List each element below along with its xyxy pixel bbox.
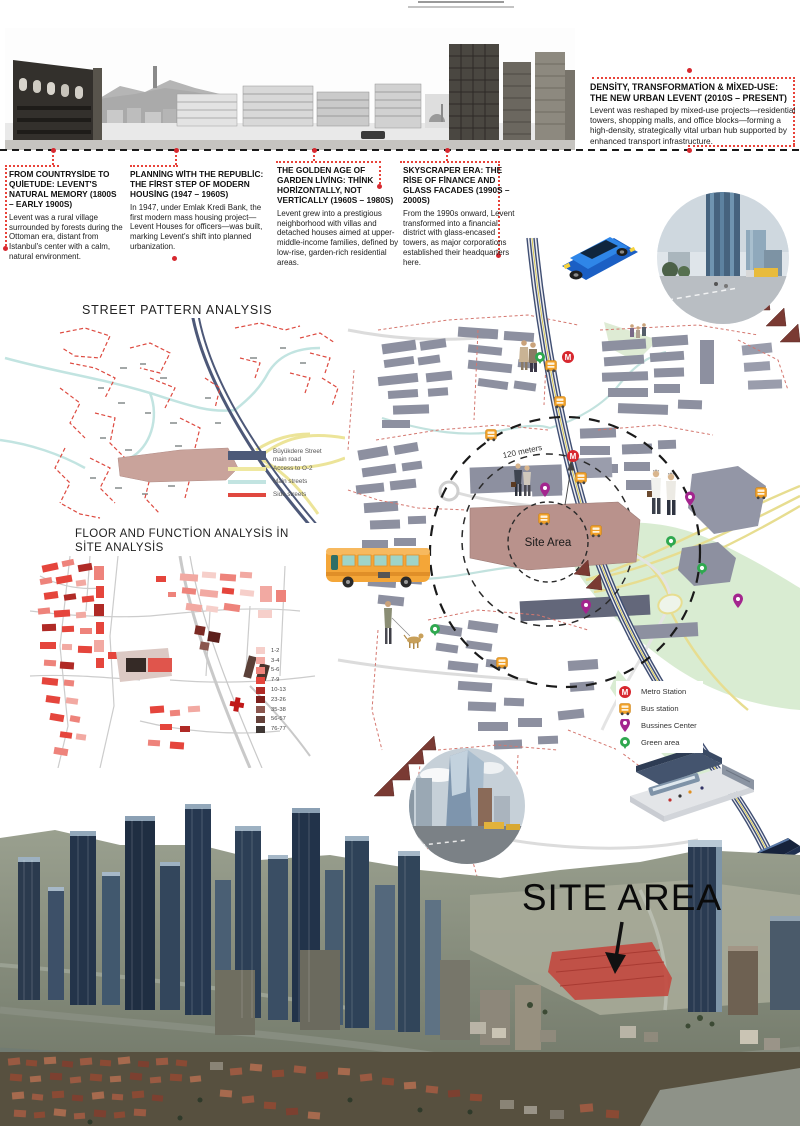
legend-swatch <box>228 451 266 460</box>
legend-label: Bussines Center <box>641 721 697 730</box>
legend-label: 3-4 <box>271 658 279 664</box>
bus-illustration <box>326 548 430 588</box>
era1-dot <box>3 246 8 251</box>
legend-row: 1-2 <box>256 646 286 656</box>
legend-label: 76-77 <box>271 726 286 732</box>
floor-function-legend: 1-2 3-4 5-6 7-9 10-13 23-26 35-38 56-57 … <box>256 646 286 734</box>
site-analysis-map: M <box>318 190 800 880</box>
timeline-axis <box>0 149 800 151</box>
timeline-dot <box>445 148 450 153</box>
legend-row: Green area <box>618 734 697 751</box>
floor-function-title-line1: FLOOR AND FUNCTİON ANALYSİS İN <box>75 527 289 541</box>
timeline-era-2: PLANNİNG WİTH THE REPUBLİC: THE FİRST ST… <box>130 170 268 252</box>
metro-icon <box>618 685 632 699</box>
timeline-dot <box>687 148 692 153</box>
legend-swatch <box>256 687 265 694</box>
business-pin-icon <box>618 719 632 733</box>
legend-row: Bus station <box>618 700 697 717</box>
legend-swatch <box>228 467 266 471</box>
illegible-caption-line <box>408 6 514 8</box>
pedestrian-with-dog <box>384 601 424 649</box>
legend-row: 5-6 <box>256 666 286 676</box>
legend-label: Bus station <box>641 704 679 713</box>
legend-label: 1-2 <box>271 648 279 654</box>
legend-row: Bussines Center <box>618 717 697 734</box>
era4-border-top <box>400 161 500 163</box>
legend-swatch <box>256 696 265 703</box>
legend-swatch <box>228 493 266 497</box>
illegible-caption-line <box>418 1 504 3</box>
legend-swatch <box>256 677 265 684</box>
legend-label: 56-57 <box>271 716 286 722</box>
legend-row: 7-9 <box>256 675 286 685</box>
era-title: PLANNİNG WİTH THE REPUBLİC: THE FİRST ST… <box>130 170 268 200</box>
legend-swatch <box>256 647 265 654</box>
timeline-dot <box>174 148 179 153</box>
era-body: Levent was reshaped by mixed-use project… <box>590 106 796 147</box>
aerial-render: SITE AREA <box>0 800 800 1126</box>
timeline-era-1: FROM COUNTRYSİDE TO QUİETUDE: LEVENT'S N… <box>9 170 123 262</box>
legend-label: 7-9 <box>271 677 279 683</box>
legend-swatch <box>256 716 265 723</box>
roof-district <box>0 1052 800 1126</box>
panorama-old-building <box>13 60 102 146</box>
legend-label: 35-38 <box>271 707 286 713</box>
legend-row: Metro Station <box>618 683 697 700</box>
bus-icon <box>618 702 632 716</box>
legend-row: 56-57 <box>256 715 286 725</box>
historic-panorama-photo <box>5 28 575 150</box>
businessmen-figures <box>647 470 676 515</box>
floor-function-title-line2: SİTE ANALYSİS <box>75 541 289 555</box>
ff-center-buildings <box>108 648 200 749</box>
legend-row: 23-26 <box>256 695 286 705</box>
timeline-era-5: DENSİTY, TRANSFORMATİON & MİXED-USE: THE… <box>590 82 796 147</box>
legend-row: 3-4 <box>256 656 286 666</box>
panorama-car <box>361 131 385 139</box>
green-area-icon <box>618 736 632 750</box>
era5-border-top <box>592 77 795 79</box>
legend-label: 23-26 <box>271 697 286 703</box>
legend-row: 76-77 <box>256 724 286 734</box>
site-area-label: Site Area <box>525 537 572 549</box>
era2-dot <box>172 256 177 261</box>
era2-border-top <box>130 165 178 167</box>
era1-border-top <box>5 165 59 167</box>
urban-analysis-board: FROM COUNTRYSİDE TO QUİETUDE: LEVENT'S N… <box>0 0 800 1131</box>
era-body: In 1947, under Emlak Kredi Bank, the fir… <box>130 203 268 252</box>
legend-label: Metro Station <box>641 687 686 696</box>
legend-row: 35-38 <box>256 705 286 715</box>
legend-label: Green area <box>641 738 679 747</box>
legend-label: 10-13 <box>271 687 286 693</box>
timeline-dot <box>312 148 317 153</box>
legend-row: 10-13 <box>256 685 286 695</box>
car-icon <box>562 237 638 280</box>
small-figures-green-patch <box>630 323 646 338</box>
era-body: Levent was a rural village surrounded by… <box>9 213 123 262</box>
era5-dot-top <box>687 68 692 73</box>
floor-function-title: FLOOR AND FUNCTİON ANALYSİS İN SİTE ANAL… <box>75 527 289 556</box>
street-pattern-title: STREET PATTERN ANALYSIS <box>82 303 272 317</box>
era1-border-left <box>5 165 7 246</box>
site-map-legend: Metro Station Bus station Bussines Cente… <box>616 681 703 753</box>
legend-swatch <box>256 706 265 713</box>
era-title: FROM COUNTRYSİDE TO QUİETUDE: LEVENT'S N… <box>9 170 123 210</box>
legend-label: 5-6 <box>271 667 279 673</box>
legend-swatch <box>228 480 266 484</box>
legend-swatch <box>256 657 265 664</box>
legend-swatch <box>256 726 265 733</box>
legend-swatch <box>256 667 265 674</box>
ff-highway <box>180 556 310 768</box>
timeline-dot <box>51 148 56 153</box>
era-title: DENSİTY, TRANSFORMATİON & MİXED-USE: THE… <box>590 82 796 103</box>
era3-border-top <box>276 161 381 163</box>
render-site-area-label: SITE AREA <box>522 877 722 918</box>
street-photo-top <box>657 192 789 324</box>
